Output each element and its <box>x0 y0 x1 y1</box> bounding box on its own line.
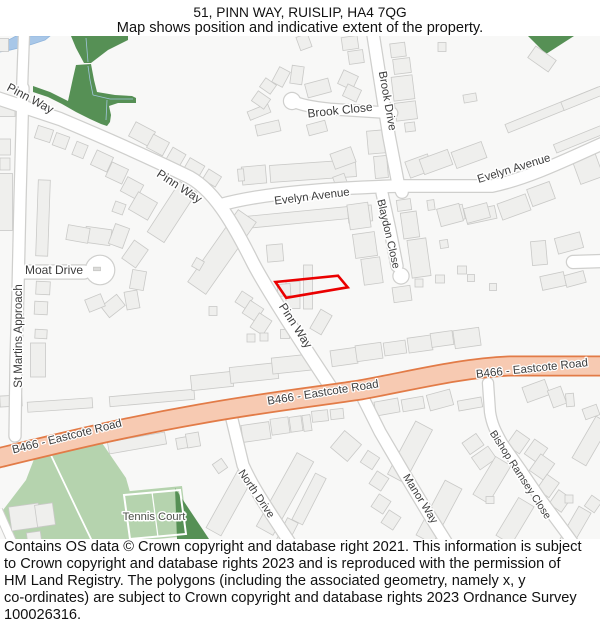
svg-text:St Martins Approach: St Martins Approach <box>13 284 25 388</box>
svg-text:Map shows position and indicat: Map shows position and indicative extent… <box>117 20 483 36</box>
svg-text:to Crown copyright and databas: to Crown copyright and database rights 2… <box>4 556 561 572</box>
svg-text:Contains OS data © Crown copyr: Contains OS data © Crown copyright and d… <box>4 539 582 555</box>
svg-text:HM Land Registry. The polygons: HM Land Registry. The polygons (includin… <box>4 573 526 589</box>
svg-text:51, PINN WAY, RUISLIP, HA4 7QG: 51, PINN WAY, RUISLIP, HA4 7QG <box>193 5 406 20</box>
svg-text:co-ordinates) are subject to C: co-ordinates) are subject to Crown copyr… <box>4 590 577 606</box>
svg-text:Moat Drive: Moat Drive <box>25 263 83 277</box>
svg-text:Tennis Court: Tennis Court <box>123 511 187 523</box>
svg-text:100026316.: 100026316. <box>4 607 81 623</box>
